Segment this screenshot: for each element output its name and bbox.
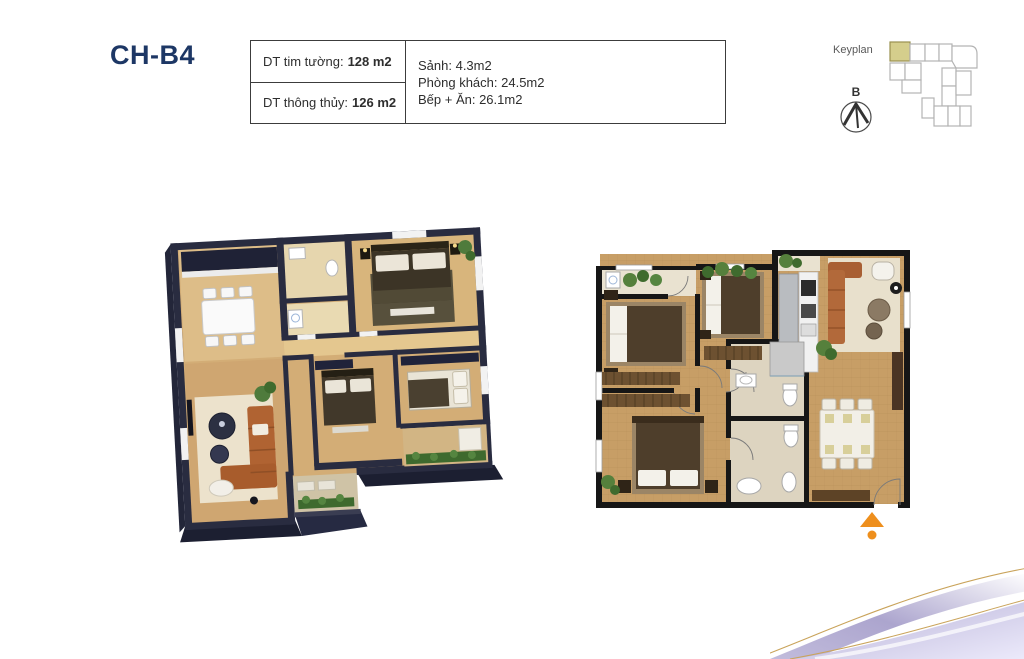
area-row-net: DT thông thủy: 126 m2 [251,83,405,124]
area-row-net-label: DT thông thủy: [263,95,348,110]
keyplan-units [890,42,977,126]
room-area-kitchen: Bếp + Ăn: 26.1m2 [418,91,725,108]
keyplan-highlighted-unit [890,42,910,61]
decorative-wave [770,557,1024,659]
area-row-gross-value: 128 m2 [348,54,392,69]
keyplan-map [884,28,1022,138]
keyplan-label: Keyplan [833,44,873,56]
area-info-table: DT tim tường: 128 m2 DT thông thủy: 126 … [250,40,726,124]
room-areas-cell: Sảnh: 4.3m2 Phòng khách: 24.5m2 Bếp + Ăn… [406,41,725,123]
bedroom3-3d [401,352,482,410]
compass: B [836,86,876,141]
area-row-gross: DT tim tường: 128 m2 [251,41,405,83]
area-row-gross-label: DT tim tường: [263,54,344,69]
compass-icon [837,98,875,136]
floorplan-3d-group [164,227,505,543]
compass-north-label: B [836,86,876,98]
entry-arrow-icon [860,512,884,540]
floorplan-2d-image [586,224,920,544]
area-row-net-value: 126 m2 [352,95,396,110]
room-area-living: Phòng khách: 24.5m2 [418,74,725,91]
page-title: CH-B4 [110,40,195,71]
loggia-3d [402,424,488,466]
bedroom2-2d [700,271,764,360]
room-area-hall: Sảnh: 4.3m2 [418,57,725,74]
area-table-left-column: DT tim tường: 128 m2 DT thông thủy: 126 … [251,41,406,123]
floorplan-3d-image [150,224,522,544]
